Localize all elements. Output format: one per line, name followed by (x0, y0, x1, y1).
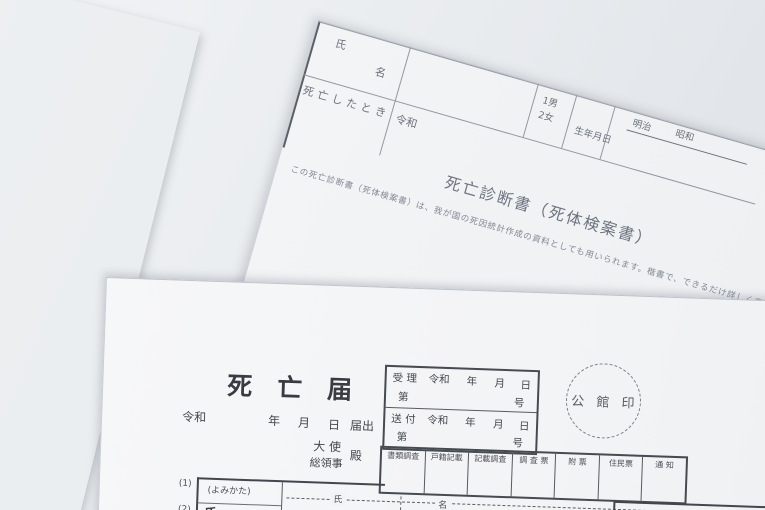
name-label-shi: 氏 (333, 35, 348, 53)
forwarding-label: 送 付 (391, 411, 416, 427)
receipt-row: 受 理 令和 年 月 日 第 号 (386, 367, 538, 412)
addressee-consul-general: 総領事 (309, 454, 343, 471)
forwarding-number-dai: 第 (396, 429, 407, 444)
sex-female-label: 2女 (537, 107, 556, 125)
col-divider-header (379, 47, 411, 155)
date-year: 年 (268, 412, 281, 429)
death-time-label: 死亡したとき (301, 82, 392, 122)
receipt-number-go: 号 (514, 395, 525, 410)
col-divider-name-sex (523, 84, 539, 137)
strip-cell-survey-slip: 調 査 票 (511, 452, 556, 497)
addressee-dono: 殿 (350, 447, 363, 464)
receipt-era: 令和 (428, 371, 450, 387)
name-guide-vertical-dash (399, 496, 401, 510)
death-notification-sheet: 死亡届 令和 年 月 日 届出 大 使 総領事 殿 受 理 令和 年 月 日 第… (95, 277, 765, 510)
addressee-ambassador: 大 使 (313, 437, 341, 455)
receipt-label: 受 理 (392, 370, 417, 386)
strip-cell-attached-slip: 附 票 (555, 454, 600, 499)
strip-cell-koseki-entry: 戸籍記載 (424, 449, 469, 494)
receipt-month: 月 (494, 376, 505, 391)
receipt-day: 日 (520, 378, 531, 393)
date-day: 日 (328, 416, 341, 433)
consulate-stamp-circle: 公 館 印 (565, 362, 643, 440)
strip-cell-document-check: 書類調査 (381, 448, 426, 493)
era-showa-label: 昭和 (674, 125, 696, 144)
receipt-box: 受 理 令和 年 月 日 第 号 送 付 令和 年 月 日 第 号 (382, 365, 540, 455)
death-time-era: 令和 (394, 111, 420, 132)
notification-title: 死亡届 (227, 366, 378, 407)
strip-cell-resident-record: 住民票 (598, 455, 643, 500)
col-divider-sex-birth (561, 95, 577, 148)
forwarding-number-go: 号 (512, 435, 523, 450)
receipt-number-dai: 第 (398, 389, 409, 404)
row-number-1: (1) (179, 479, 192, 489)
forwarding-month: 月 (493, 417, 504, 432)
date-month: 月 (298, 414, 311, 431)
row-number-2: (2) (178, 505, 191, 510)
date-notify: 届出 (350, 417, 375, 435)
processing-strip: 書類調査 戸籍記載 記載調査 調 査 票 附 票 住民票 通 知 (379, 446, 688, 505)
receipt-year: 年 (466, 374, 477, 389)
lower-right-box-corner (611, 501, 765, 510)
surname-field-label: 氏 (204, 503, 218, 510)
forwarding-day: 日 (519, 419, 530, 434)
name-guide-shi: 氏 (330, 492, 345, 506)
date-era: 令和 (182, 408, 207, 426)
name-guide-mei: 名 (435, 498, 450, 510)
birth-date-label: 生年月日 (573, 122, 613, 146)
forwarding-year: 年 (465, 415, 476, 430)
forwarding-era: 令和 (427, 412, 449, 428)
strip-cell-entry-check: 記載調査 (468, 451, 513, 496)
yomikata-label: (よみかた) (207, 483, 250, 497)
certificate-table: 氏 名 1男 2女 生年月日 明治 昭和 死亡したとき 令和 (283, 21, 765, 305)
strip-cell-notice: 通 知 (642, 457, 686, 502)
name-label-mei: 名 (373, 63, 388, 81)
photo-of-japanese-death-forms: 死亡診断書（死体検案書） この死亡診断書（死体検案書）は、我が国の死因統計作成の… (0, 0, 765, 510)
